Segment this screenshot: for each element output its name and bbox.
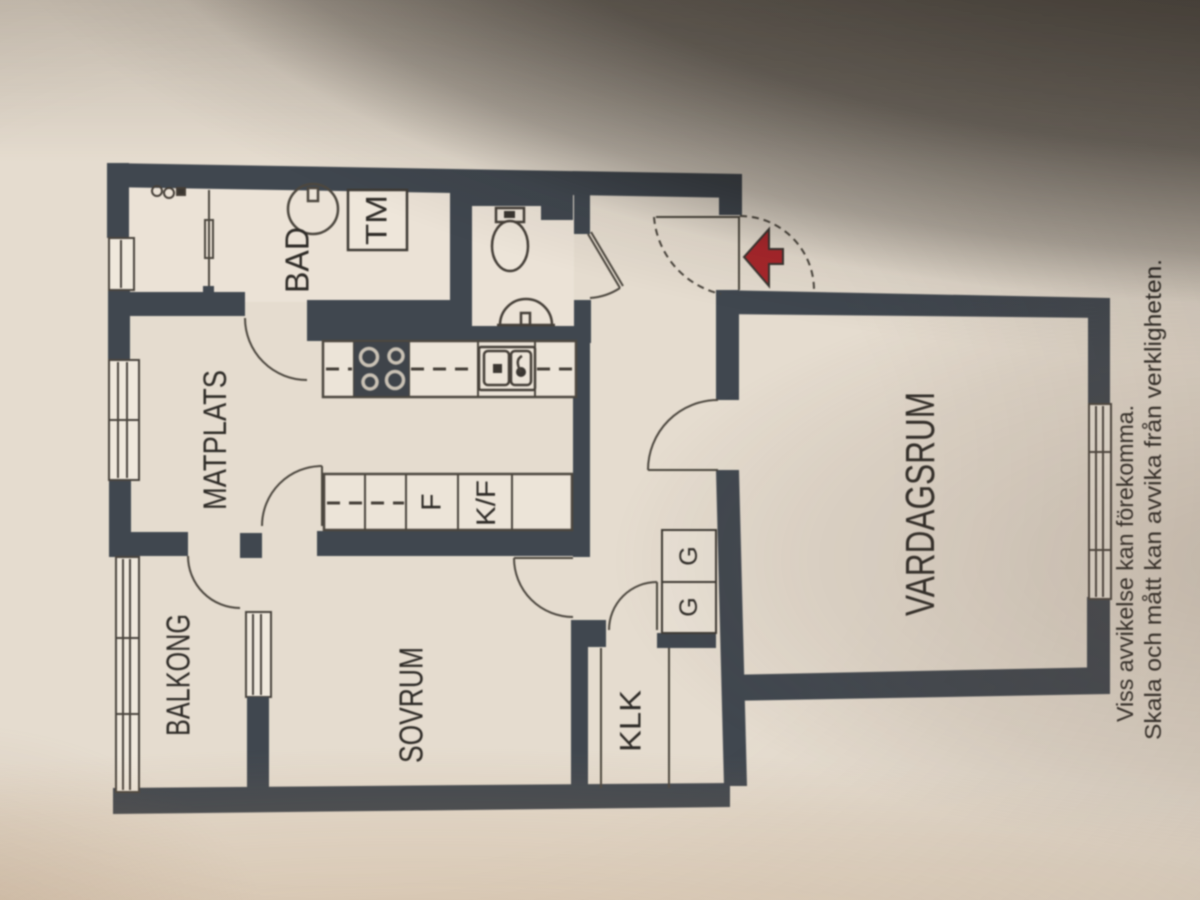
svg-text:F: F xyxy=(416,493,447,510)
svg-text:MATPLATS: MATPLATS xyxy=(197,370,233,510)
svg-text:G: G xyxy=(675,546,703,565)
svg-text:TM: TM xyxy=(361,195,394,245)
svg-text:Skala och mått kan avvika från: Skala och mått kan avvika från verklighe… xyxy=(1140,259,1166,740)
svg-text:K/F: K/F xyxy=(471,480,501,526)
svg-text:G: G xyxy=(675,597,703,616)
svg-text:VARDAGSRUM: VARDAGSRUM xyxy=(897,392,943,616)
svg-text:SOVRUM: SOVRUM xyxy=(393,647,430,763)
svg-text:KLK: KLK xyxy=(615,690,648,752)
svg-text:Viss avvikelse kan förekomma.: Viss avvikelse kan förekomma. xyxy=(1112,405,1138,722)
svg-text:BAD: BAD xyxy=(279,227,316,293)
svg-text:BALKONG: BALKONG xyxy=(160,614,197,736)
